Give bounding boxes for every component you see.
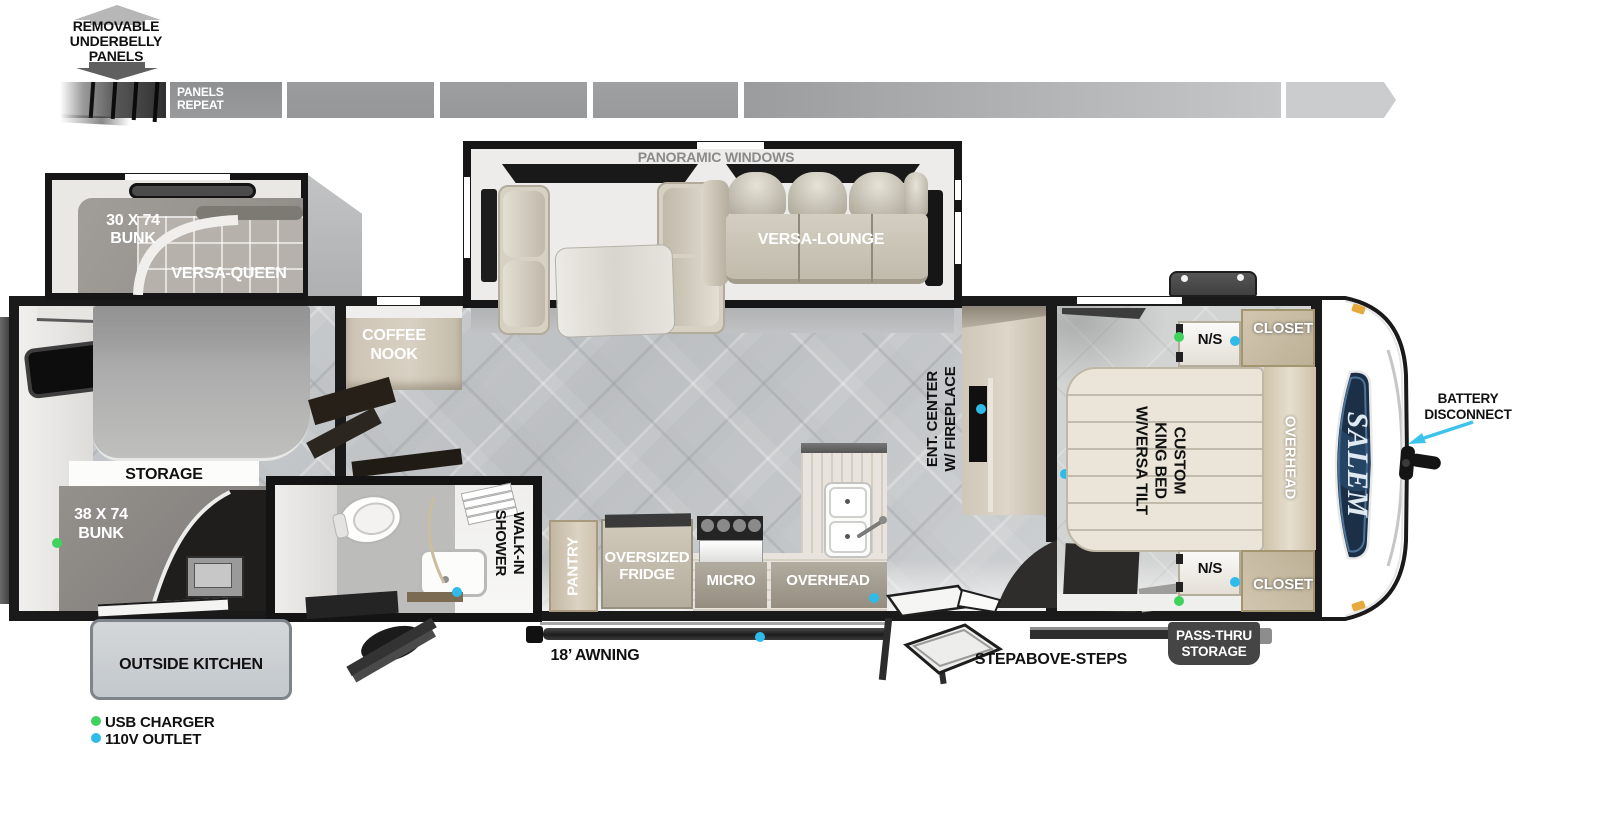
svg-text:SALEM: SALEM xyxy=(1341,412,1374,519)
